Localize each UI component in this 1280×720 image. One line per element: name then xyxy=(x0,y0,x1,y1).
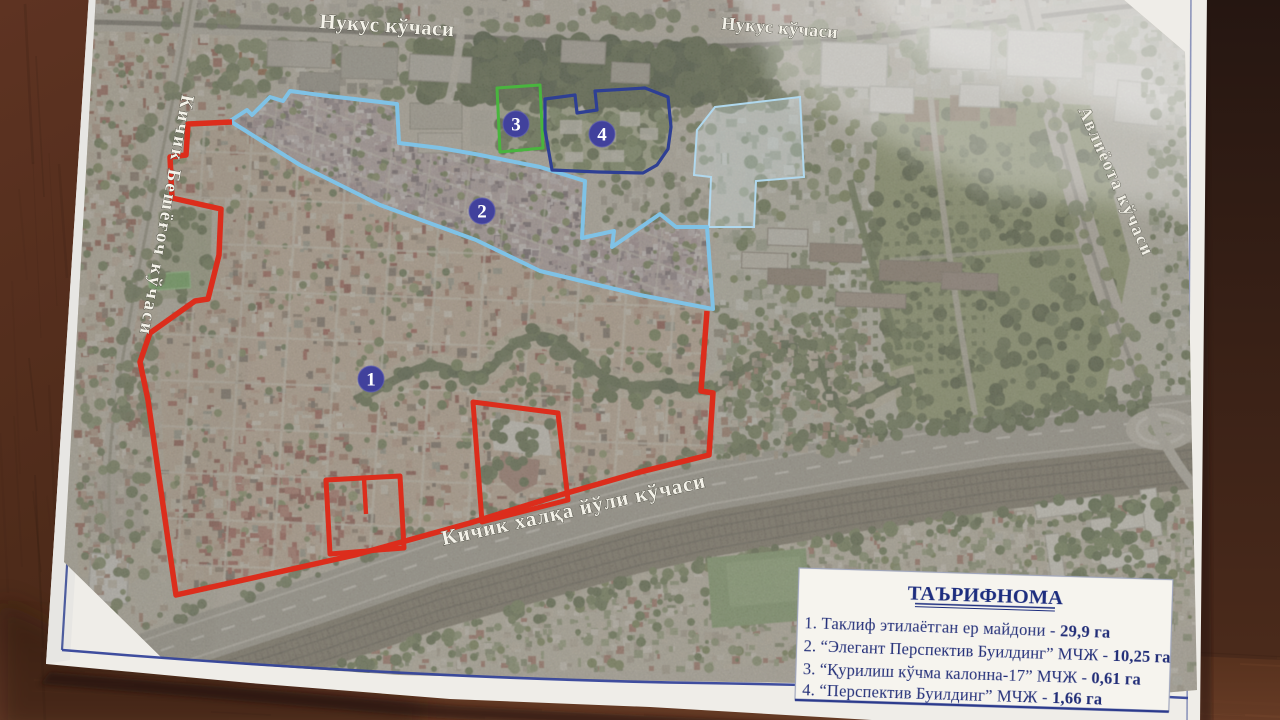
svg-text:4: 4 xyxy=(597,125,607,146)
svg-text:2: 2 xyxy=(477,202,487,223)
svg-text:3: 3 xyxy=(511,115,521,136)
svg-text:1: 1 xyxy=(366,370,376,391)
